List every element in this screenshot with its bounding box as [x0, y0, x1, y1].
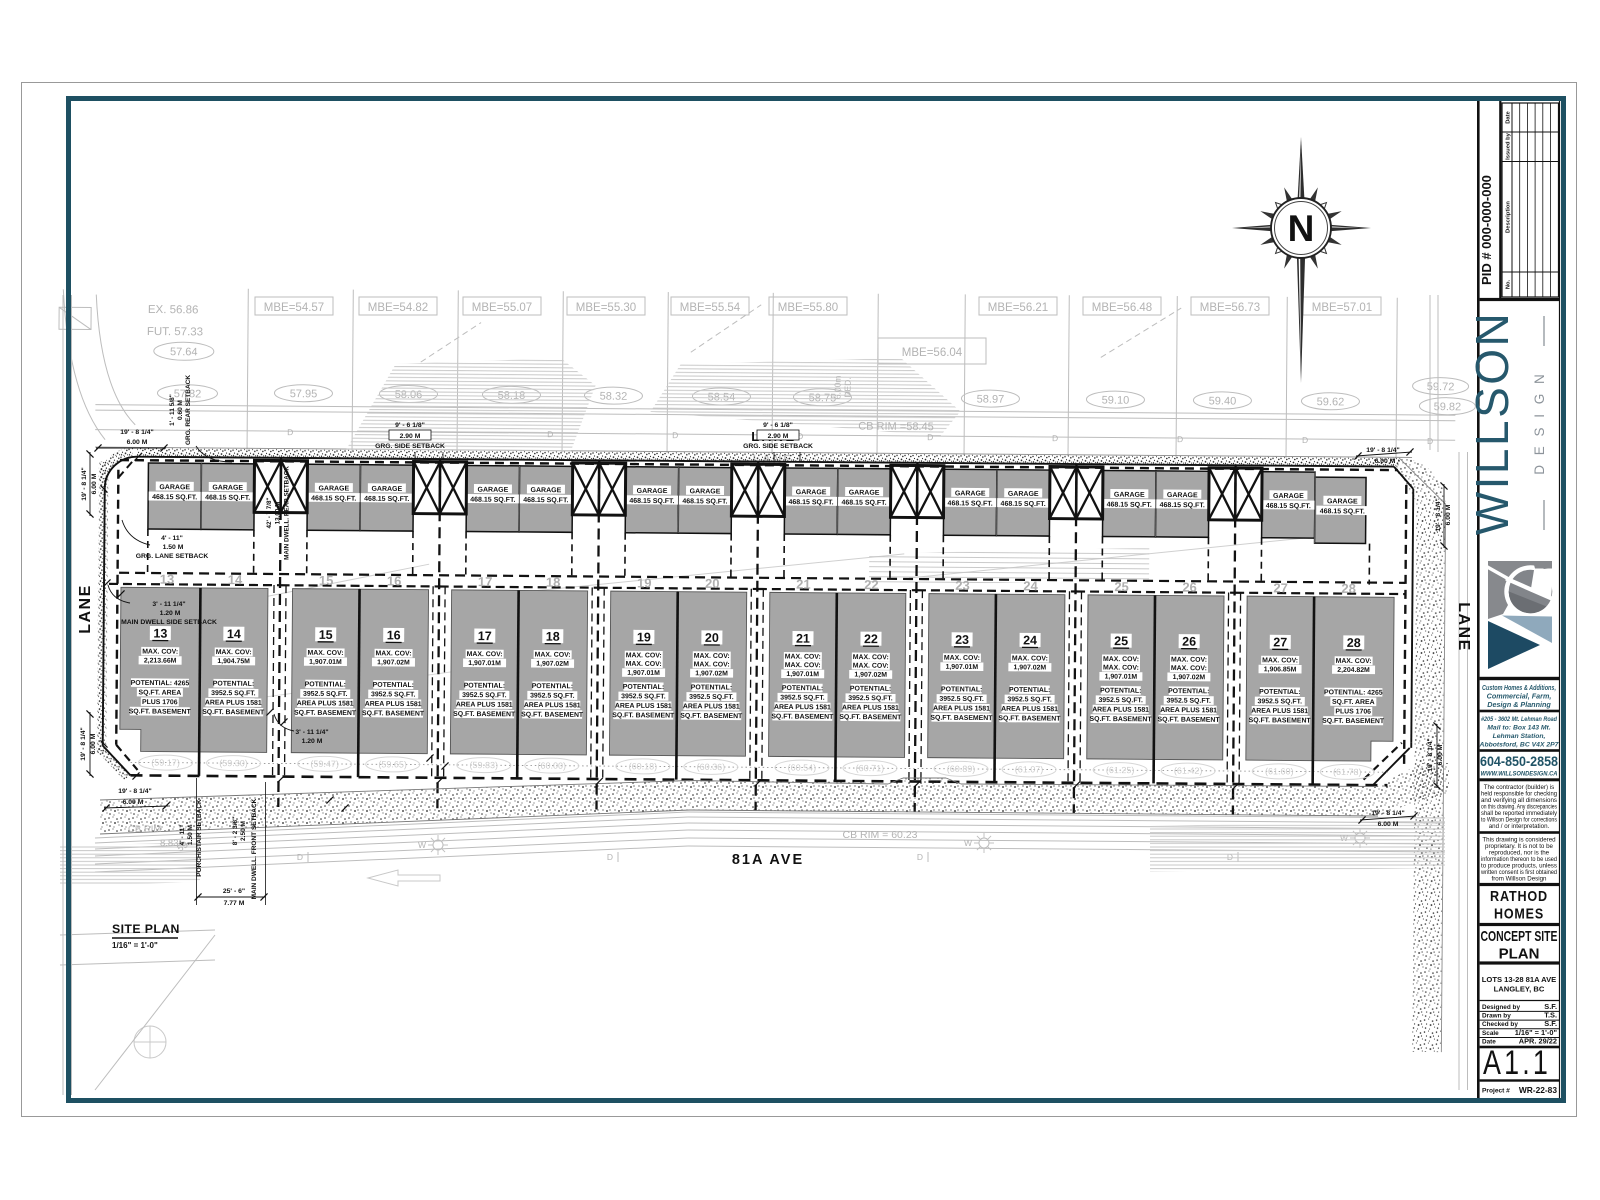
- svg-text:GARAGE: GARAGE: [212, 484, 243, 491]
- svg-text:D: D: [1302, 435, 1308, 445]
- svg-text:1,907.01M: 1,907.01M: [309, 659, 342, 666]
- svg-text:Scale: Scale: [1482, 1030, 1499, 1037]
- svg-text:SQ.FT. BASEMENT: SQ.FT. BASEMENT: [1158, 716, 1221, 723]
- svg-text:HOMES: HOMES: [1494, 906, 1544, 923]
- svg-text:3952.5 SQ.FT.: 3952.5 SQ.FT.: [1098, 697, 1143, 704]
- svg-text:59.10: 59.10: [1102, 394, 1130, 406]
- svg-text:4' - 11": 4' - 11": [161, 535, 183, 542]
- svg-text:Abbotsford, BC V4X 2P7: Abbotsford, BC V4X 2P7: [1479, 742, 1560, 749]
- svg-text:D: D: [672, 430, 678, 440]
- svg-text:SQ.FT. BASEMENT: SQ.FT. BASEMENT: [1090, 716, 1153, 723]
- svg-text:58.97: 58.97: [977, 393, 1005, 405]
- svg-text:(61.07): (61.07): [1015, 764, 1044, 774]
- svg-text:D: D: [1052, 433, 1058, 443]
- svg-text:24: 24: [1023, 633, 1037, 647]
- svg-text:MBE=54.82: MBE=54.82: [368, 302, 428, 314]
- svg-text:GARAGE: GARAGE: [796, 489, 827, 496]
- svg-text:(59.47): (59.47): [310, 759, 339, 769]
- svg-text:CONCEPT SITE: CONCEPT SITE: [1481, 928, 1558, 945]
- svg-text:AREA PLUS 1581: AREA PLUS 1581: [1001, 706, 1058, 713]
- svg-text:24: 24: [1023, 578, 1038, 593]
- svg-text:MAX. COV:: MAX. COV:: [376, 650, 412, 657]
- svg-text:19' - 8 1/4": 19' - 8 1/4": [1427, 738, 1434, 772]
- svg-text:AREA PLUS 1581: AREA PLUS 1581: [1251, 708, 1308, 715]
- svg-text:468.15 SQ.FT.: 468.15 SQ.FT.: [364, 496, 409, 503]
- svg-text:20: 20: [705, 576, 720, 591]
- svg-text:LOTS 13-28 81A AVE: LOTS 13-28 81A AVE: [1482, 975, 1556, 984]
- svg-text:WILLSON: WILLSON: [1466, 311, 1518, 536]
- svg-text:59.40: 59.40: [1209, 395, 1237, 407]
- svg-text:20: 20: [705, 631, 719, 645]
- svg-text:1/16" = 1'-0": 1/16" = 1'-0": [112, 941, 158, 950]
- svg-text:1' - 11 5/8": 1' - 11 5/8": [169, 394, 176, 426]
- svg-text:59.72: 59.72: [1427, 381, 1455, 393]
- svg-text:POTENTIAL:: POTENTIAL:: [532, 683, 573, 690]
- svg-text:POTENTIAL:: POTENTIAL:: [1100, 687, 1141, 694]
- svg-text:MAX. COV:: MAX. COV:: [1171, 657, 1207, 664]
- svg-text:18: 18: [546, 575, 561, 590]
- svg-text:SQ.FT. BASEMENT: SQ.FT. BASEMENT: [839, 714, 902, 721]
- svg-text:GARAGE: GARAGE: [637, 488, 668, 495]
- svg-text:SQ.FT. BASEMENT: SQ.FT. BASEMENT: [771, 713, 834, 720]
- svg-text:Description: Description: [1506, 201, 1512, 233]
- svg-text:POTENTIAL:: POTENTIAL:: [373, 682, 414, 689]
- svg-text:SQ.FT. BASEMENT: SQ.FT. BASEMENT: [612, 712, 675, 719]
- svg-text:468.15 SQ.FT.: 468.15 SQ.FT.: [948, 500, 993, 507]
- svg-text:21: 21: [796, 632, 810, 646]
- svg-text:81A AVE: 81A AVE: [732, 852, 804, 868]
- svg-text:POTENTIAL:: POTENTIAL:: [782, 685, 823, 692]
- svg-text:3' - 11 1/4": 3' - 11 1/4": [295, 729, 328, 736]
- svg-text:15: 15: [319, 573, 334, 588]
- svg-text:D: D: [917, 852, 923, 862]
- svg-text:3952.5 SQ.FT.: 3952.5 SQ.FT.: [1007, 696, 1052, 703]
- svg-text:Drawn by: Drawn by: [1482, 1013, 1511, 1020]
- svg-text:PLAN: PLAN: [1499, 946, 1540, 963]
- svg-text:AREA PLUS 1581: AREA PLUS 1581: [1160, 707, 1217, 714]
- svg-text:468.15 SQ.FT.: 468.15 SQ.FT.: [629, 498, 674, 505]
- svg-text:SQ.FT. BASEMENT: SQ.FT. BASEMENT: [930, 715, 993, 722]
- svg-text:3952.5 SQ.FT.: 3952.5 SQ.FT.: [1166, 697, 1211, 704]
- svg-text:from Willson Design: from Willson Design: [1491, 876, 1547, 883]
- svg-text:(59.65): (59.65): [378, 759, 407, 769]
- svg-text:PLUS 1706: PLUS 1706: [1335, 708, 1371, 715]
- svg-text:(60.71): (60.71): [856, 763, 885, 773]
- svg-text:MAX. COV:: MAX. COV:: [142, 648, 178, 655]
- svg-text:POTENTIAL:: POTENTIAL:: [1009, 687, 1050, 694]
- svg-text:468.15 SQ.FT.: 468.15 SQ.FT.: [788, 499, 833, 506]
- svg-text:PID # 000-000-000: PID # 000-000-000: [1479, 175, 1494, 285]
- svg-text:6.00 M: 6.00 M: [90, 733, 97, 754]
- svg-text:MAX. COV:: MAX. COV:: [1262, 657, 1298, 664]
- svg-text:AREA PLUS 1581: AREA PLUS 1581: [1092, 706, 1149, 713]
- svg-text:19' - 8 1/4": 19' - 8 1/4": [120, 429, 154, 436]
- svg-text:MAX. COV:: MAX. COV:: [1336, 658, 1372, 665]
- svg-text:MBE=56.73: MBE=56.73: [1200, 302, 1260, 314]
- svg-text:57.95: 57.95: [290, 388, 318, 400]
- svg-text:468.15 SQ.FT.: 468.15 SQ.FT.: [470, 497, 515, 504]
- svg-text:GARAGE: GARAGE: [1167, 492, 1198, 499]
- svg-text:(61.25): (61.25): [1106, 765, 1135, 775]
- svg-text:MAX. COV:: MAX. COV:: [853, 663, 889, 670]
- svg-text:1,904.75M: 1,904.75M: [217, 658, 250, 665]
- svg-text:1,907.01M: 1,907.01M: [1105, 674, 1138, 681]
- svg-text:No.: No.: [1506, 279, 1512, 289]
- svg-text:19' - 8 1/4": 19' - 8 1/4": [1435, 498, 1442, 532]
- svg-text:PORCH/STAIR SETBACK: PORCH/STAIR SETBACK: [196, 799, 203, 877]
- svg-text:POTENTIAL:: POTENTIAL:: [1168, 688, 1209, 695]
- svg-text:MBE=55.07: MBE=55.07: [472, 302, 532, 314]
- svg-text:RATHOD: RATHOD: [1490, 888, 1548, 905]
- svg-text:9' - 6 1/8": 9' - 6 1/8": [395, 422, 425, 429]
- svg-text:1,907.01M: 1,907.01M: [946, 664, 979, 671]
- svg-text:MAIN DWELL SIDE SETBACK: MAIN DWELL SIDE SETBACK: [121, 619, 217, 626]
- svg-text:468.15 SQ.FT.: 468.15 SQ.FT.: [1001, 501, 1046, 508]
- svg-text:T.S.: T.S.: [1544, 1011, 1557, 1020]
- svg-text:MAX. COV:: MAX. COV:: [853, 654, 889, 661]
- svg-text:AREA PLUS 1581: AREA PLUS 1581: [297, 700, 354, 707]
- svg-text:2.50 M: 2.50 M: [240, 821, 247, 841]
- svg-text:(60.54): (60.54): [788, 763, 817, 773]
- svg-text:2,204.82M: 2,204.82M: [1337, 667, 1370, 674]
- svg-text:GRG. SIDE SETBACK: GRG. SIDE SETBACK: [375, 443, 445, 450]
- svg-text:19: 19: [637, 630, 651, 644]
- svg-text:26: 26: [1182, 635, 1196, 649]
- svg-text:GARAGE: GARAGE: [531, 487, 562, 494]
- svg-text:28: 28: [1347, 636, 1361, 650]
- svg-text:D: D: [287, 427, 293, 437]
- svg-text:and / or interpretation.: and / or interpretation.: [1489, 823, 1550, 830]
- svg-text:S.F.: S.F.: [1544, 1002, 1557, 1011]
- svg-text:WWW.WILLSONDESIGN.CA: WWW.WILLSONDESIGN.CA: [1481, 771, 1558, 778]
- svg-text:CB RIM: CB RIM: [128, 824, 161, 835]
- svg-text:MAX. COV:: MAX. COV:: [1012, 655, 1048, 662]
- svg-text:GARAGE: GARAGE: [1114, 492, 1145, 499]
- svg-text:POTENTIAL:: POTENTIAL:: [850, 686, 891, 693]
- svg-text:3952.5 SQ.FT.: 3952.5 SQ.FT.: [211, 690, 256, 697]
- svg-text:468.15 SQ.FT.: 468.15 SQ.FT.: [1107, 502, 1152, 509]
- svg-text:GARAGE: GARAGE: [1008, 491, 1039, 498]
- svg-text:1,907.02M: 1,907.02M: [1014, 664, 1047, 671]
- svg-text:SQ.FT. BASEMENT: SQ.FT. BASEMENT: [680, 713, 743, 720]
- svg-text:6.00 M: 6.00 M: [123, 799, 144, 806]
- svg-text:GARAGE: GARAGE: [1273, 493, 1304, 500]
- svg-text:57.64: 57.64: [170, 346, 198, 358]
- svg-text:POTENTIAL: 4265: POTENTIAL: 4265: [131, 680, 190, 687]
- svg-text:25: 25: [1114, 634, 1128, 648]
- svg-text:Checked by: Checked by: [1482, 1021, 1518, 1028]
- svg-text:1,907.01M: 1,907.01M: [786, 671, 819, 678]
- svg-text:58.32: 58.32: [600, 391, 628, 403]
- svg-text:AREA PLUS 1581: AREA PLUS 1581: [524, 702, 581, 709]
- svg-text:1,907.01M: 1,907.01M: [627, 670, 660, 677]
- svg-text:4' - 11": 4' - 11": [179, 825, 186, 846]
- svg-text:16: 16: [387, 628, 401, 642]
- svg-text:MAIN DWELL. REAR SETBACK: MAIN DWELL. REAR SETBACK: [284, 466, 291, 560]
- svg-text:1,907.02M: 1,907.02M: [854, 672, 887, 679]
- svg-text:19' - 8 1/4": 19' - 8 1/4": [80, 727, 87, 761]
- svg-text:Issued by: Issued by: [1506, 132, 1512, 160]
- svg-text:MAX. COV:: MAX. COV:: [1103, 664, 1139, 671]
- svg-text:D: D: [297, 852, 303, 862]
- svg-text:468.15 SQ.FT.: 468.15 SQ.FT.: [205, 494, 250, 501]
- svg-text:MBE=56.21: MBE=56.21: [988, 302, 1048, 314]
- svg-text:3952.5 SQ.FT.: 3952.5 SQ.FT.: [1258, 698, 1303, 705]
- svg-text:(60.89): (60.89): [947, 764, 976, 774]
- svg-text:23: 23: [955, 578, 970, 593]
- svg-text:AREA PLUS 1581: AREA PLUS 1581: [205, 699, 262, 706]
- svg-text:SQ.FT. BASEMENT: SQ.FT. BASEMENT: [453, 711, 516, 718]
- svg-text:Designed by: Designed by: [1482, 1004, 1520, 1011]
- svg-text:SQ.FT. BASEMENT: SQ.FT. BASEMENT: [294, 710, 357, 717]
- svg-text:D: D: [1177, 434, 1183, 444]
- svg-text:(61.42): (61.42): [1174, 766, 1203, 776]
- svg-text:14: 14: [227, 627, 241, 641]
- svg-text:3952.5 SQ.FT.: 3952.5 SQ.FT.: [689, 694, 734, 701]
- svg-text:(60.00): (60.00): [537, 761, 566, 771]
- svg-text:(59.17): (59.17): [151, 758, 180, 768]
- svg-text:MAX. COV:: MAX. COV:: [785, 653, 821, 660]
- svg-text:POTENTIAL:: POTENTIAL:: [941, 686, 982, 693]
- svg-text:GARAGE: GARAGE: [159, 484, 190, 491]
- svg-text:AREA PLUS 1581: AREA PLUS 1581: [774, 704, 831, 711]
- svg-text:SQ.FT. BASEMENT: SQ.FT. BASEMENT: [521, 711, 584, 718]
- svg-text:15: 15: [319, 628, 333, 642]
- svg-text:19' - 8 1/4": 19' - 8 1/4": [81, 467, 88, 501]
- svg-text:AREA PLUS 1581: AREA PLUS 1581: [683, 703, 740, 710]
- svg-text:SQ.FT. BASEMENT: SQ.FT. BASEMENT: [1322, 718, 1385, 725]
- svg-text:MBE=55.54: MBE=55.54: [680, 302, 741, 314]
- svg-text:D: D: [927, 432, 933, 442]
- svg-text:WR-22-83: WR-22-83: [1519, 1085, 1558, 1095]
- svg-text:A1.1: A1.1: [1483, 1044, 1551, 1082]
- svg-text:POTENTIAL: 4265: POTENTIAL: 4265: [1324, 689, 1383, 696]
- svg-text:MBE=56.48: MBE=56.48: [1092, 302, 1152, 314]
- svg-text:LANE: LANE: [77, 584, 94, 634]
- svg-text:468.15 SQ.FT.: 468.15 SQ.FT.: [311, 495, 356, 502]
- svg-text:SQ.FT. BASEMENT: SQ.FT. BASEMENT: [202, 709, 265, 716]
- svg-text:MBE=57.01: MBE=57.01: [1312, 302, 1372, 314]
- svg-text:GARAGE: GARAGE: [955, 490, 986, 497]
- svg-text:19' - 8 1/4": 19' - 8 1/4": [1371, 810, 1405, 817]
- svg-text:GRG. LANE SETBACK: GRG. LANE SETBACK: [136, 553, 209, 560]
- svg-text:(61.78): (61.78): [1333, 767, 1362, 777]
- svg-text:2,213.66M: 2,213.66M: [144, 657, 177, 664]
- svg-text:2.90 M: 2.90 M: [400, 433, 421, 440]
- svg-text:23: 23: [955, 633, 969, 647]
- svg-text:LANE: LANE: [1455, 602, 1472, 652]
- svg-text:25' - 6": 25' - 6": [223, 888, 245, 895]
- svg-text:LANGLEY, BC: LANGLEY, BC: [1494, 985, 1545, 994]
- svg-text:CB RIM =58.45: CB RIM =58.45: [858, 421, 934, 434]
- svg-text:3952.5 SQ.FT.: 3952.5 SQ.FT.: [371, 691, 416, 698]
- svg-text:MAX. COV:: MAX. COV:: [694, 653, 730, 660]
- svg-text:26: 26: [1182, 580, 1197, 595]
- svg-text:19: 19: [637, 575, 652, 590]
- svg-text:1,907.02M: 1,907.02M: [377, 659, 410, 666]
- svg-text:1,907.02M: 1,907.02M: [1173, 674, 1206, 681]
- svg-text:(60.18): (60.18): [629, 761, 658, 771]
- svg-text:W: W: [964, 838, 972, 848]
- svg-text:1.50 M: 1.50 M: [163, 544, 184, 551]
- svg-text:MAIN DWELL. FRONT SETBACK: MAIN DWELL. FRONT SETBACK: [251, 798, 258, 899]
- svg-text:AREA PLUS 1581: AREA PLUS 1581: [456, 701, 513, 708]
- svg-text:PLUS 1706: PLUS 1706: [142, 699, 178, 706]
- svg-text:6.00 M: 6.00 M: [1437, 744, 1444, 765]
- svg-text:28: 28: [1341, 581, 1356, 596]
- svg-text:MBE=54.57: MBE=54.57: [264, 302, 324, 314]
- svg-text:42' - 7 7/8": 42' - 7 7/8": [266, 497, 273, 528]
- svg-text:GARAGE: GARAGE: [1327, 498, 1358, 505]
- svg-text:N: N: [1288, 208, 1315, 249]
- svg-text:Lehman Station,: Lehman Station,: [1493, 733, 1546, 740]
- svg-text:468.15 SQ.FT.: 468.15 SQ.FT.: [1160, 502, 1205, 509]
- svg-text:EX. 56.86: EX. 56.86: [148, 304, 199, 316]
- svg-text:468.15 SQ.FT.: 468.15 SQ.FT.: [682, 498, 727, 505]
- svg-text:17: 17: [478, 574, 493, 589]
- svg-text:MAX. COV:: MAX. COV:: [308, 650, 344, 657]
- svg-text:POTENTIAL:: POTENTIAL:: [691, 684, 732, 691]
- svg-text:3952.5 SQ.FT.: 3952.5 SQ.FT.: [939, 696, 984, 703]
- svg-text:SQ.FT. AREA: SQ.FT. AREA: [1332, 699, 1375, 706]
- svg-text:3952.5 SQ.FT.: 3952.5 SQ.FT.: [848, 695, 893, 702]
- svg-text:W: W: [418, 840, 426, 850]
- svg-text:1/16" = 1'-0": 1/16" = 1'-0": [1515, 1028, 1558, 1037]
- svg-text:22: 22: [864, 577, 879, 592]
- svg-text:FUT. 57.33: FUT. 57.33: [147, 326, 203, 338]
- svg-text:13: 13: [160, 572, 175, 587]
- svg-text:MAX. COV:: MAX. COV:: [694, 661, 730, 668]
- svg-text:POTENTIAL:: POTENTIAL:: [623, 684, 664, 691]
- svg-text:3952.5 SQ.FT.: 3952.5 SQ.FT.: [780, 694, 825, 701]
- svg-text:468.15 SQ.FT.: 468.15 SQ.FT.: [841, 499, 886, 506]
- svg-text:16: 16: [387, 573, 402, 588]
- svg-text:AREA PLUS 1581: AREA PLUS 1581: [842, 704, 899, 711]
- svg-text:3' - 11 1/4": 3' - 11 1/4": [152, 601, 185, 608]
- svg-text:MAX. COV:: MAX. COV:: [1103, 656, 1139, 663]
- svg-text:MBE=55.80: MBE=55.80: [778, 302, 838, 314]
- svg-text:468.15 SQ.FT.: 468.15 SQ.FT.: [152, 494, 197, 501]
- svg-text:(59.83): (59.83): [469, 760, 498, 770]
- svg-text:2.90 M: 2.90 M: [768, 433, 789, 440]
- svg-text:S.F.: S.F.: [1544, 1019, 1557, 1028]
- svg-text:GARAGE: GARAGE: [318, 485, 349, 492]
- svg-text:3952.5 SQ.FT.: 3952.5 SQ.FT.: [621, 693, 666, 700]
- svg-text:(59.30): (59.30): [219, 758, 248, 768]
- svg-text:17: 17: [478, 629, 492, 643]
- svg-text:GARAGE: GARAGE: [690, 488, 721, 495]
- svg-text:604-850-2858: 604-850-2858: [1480, 754, 1558, 770]
- svg-text:468.15 SQ.FT.: 468.15 SQ.FT.: [1320, 508, 1365, 515]
- svg-text:13.00 M: 13.00 M: [275, 502, 282, 525]
- svg-text:27: 27: [1273, 580, 1288, 595]
- svg-text:9' - 6 1/8": 9' - 6 1/8": [763, 422, 793, 429]
- svg-text:SQ.FT. BASEMENT: SQ.FT. BASEMENT: [998, 715, 1061, 722]
- svg-text:1,907.02M: 1,907.02M: [536, 661, 569, 668]
- svg-text:468.15 SQ.FT.: 468.15 SQ.FT.: [523, 497, 568, 504]
- svg-text:Design & Planning: Design & Planning: [1487, 700, 1551, 709]
- svg-text:6.00 M: 6.00 M: [1375, 458, 1396, 465]
- svg-text:MAX. COV:: MAX. COV:: [944, 655, 980, 662]
- svg-text:SQ.FT. BASEMENT: SQ.FT. BASEMENT: [129, 708, 192, 715]
- svg-text:25: 25: [1114, 579, 1129, 594]
- svg-text:DED.: DED.: [842, 377, 852, 397]
- svg-text:21: 21: [796, 577, 811, 592]
- svg-text:MBE=56.04: MBE=56.04: [902, 347, 963, 359]
- svg-text:59.62: 59.62: [1317, 396, 1345, 408]
- svg-text:0.60 M: 0.60 M: [177, 400, 184, 420]
- svg-text:AREA PLUS 1581: AREA PLUS 1581: [933, 705, 990, 712]
- svg-text:(61.60): (61.60): [1265, 766, 1294, 776]
- svg-text:GRG. REAR SETBACK: GRG. REAR SETBACK: [185, 375, 192, 445]
- svg-text:MBE=55.30: MBE=55.30: [576, 302, 636, 314]
- svg-text:Mail to: Box 143 Mt.: Mail to: Box 143 Mt.: [1487, 725, 1551, 732]
- svg-text:27: 27: [1273, 635, 1287, 649]
- svg-text:POTENTIAL:: POTENTIAL:: [464, 682, 505, 689]
- svg-text:6.00 M: 6.00 M: [91, 473, 98, 494]
- svg-text:Date: Date: [1506, 110, 1512, 123]
- svg-text:SITE PLAN: SITE PLAN: [112, 922, 180, 936]
- svg-text:D: D: [547, 429, 553, 439]
- svg-text:468.15 SQ.FT.: 468.15 SQ.FT.: [1266, 503, 1311, 510]
- svg-text:22: 22: [864, 632, 878, 646]
- svg-text:3952.5 SQ.FT.: 3952.5 SQ.FT.: [462, 692, 507, 699]
- svg-text:SQ.FT. BASEMENT: SQ.FT. BASEMENT: [1249, 717, 1312, 724]
- svg-text:(60.36): (60.36): [697, 762, 726, 772]
- svg-text:GARAGE: GARAGE: [371, 486, 402, 493]
- svg-text:POTENTIAL:: POTENTIAL:: [1259, 689, 1300, 696]
- svg-text:MAX. COV:: MAX. COV:: [535, 652, 571, 659]
- svg-text:GARAGE: GARAGE: [849, 489, 880, 496]
- svg-text:3952.5 SQ.FT.: 3952.5 SQ.FT.: [530, 692, 575, 699]
- svg-text:MAX. COV:: MAX. COV:: [216, 649, 252, 656]
- svg-text:MAX. COV:: MAX. COV:: [467, 651, 503, 658]
- svg-text:AREA PLUS 1581: AREA PLUS 1581: [365, 701, 422, 708]
- svg-text:6.00 M: 6.00 M: [1445, 504, 1452, 525]
- svg-text:SQ.FT. BASEMENT: SQ.FT. BASEMENT: [362, 710, 425, 717]
- svg-text:18: 18: [546, 630, 560, 644]
- svg-text:7.77 M: 7.77 M: [224, 900, 245, 907]
- svg-text:POTENTIAL:: POTENTIAL:: [213, 681, 254, 688]
- svg-text:8' - 2 3/8": 8' - 2 3/8": [232, 817, 239, 845]
- svg-text:GRG. SIDE SETBACK: GRG. SIDE SETBACK: [743, 443, 813, 450]
- svg-text:AREA PLUS 1581: AREA PLUS 1581: [615, 703, 672, 710]
- svg-text:MAX. COV:: MAX. COV:: [1171, 665, 1207, 672]
- svg-text:GARAGE: GARAGE: [478, 487, 509, 494]
- svg-text:D: D: [607, 852, 613, 862]
- svg-text:1,907.02M: 1,907.02M: [695, 670, 728, 677]
- svg-text:19' - 8 1/4": 19' - 8 1/4": [118, 788, 152, 795]
- svg-text:1.20 M: 1.20 M: [302, 738, 323, 745]
- svg-text:#205 - 3602 Mt. Lehman Road: #205 - 3602 Mt. Lehman Road: [1481, 716, 1558, 723]
- svg-text:MAX. COV:: MAX. COV:: [785, 662, 821, 669]
- svg-text:POTENTIAL:: POTENTIAL:: [305, 681, 346, 688]
- svg-text:MAX. COV:: MAX. COV:: [626, 661, 662, 668]
- svg-text:MAX. COV:: MAX. COV:: [626, 652, 662, 659]
- svg-text:6.00 M: 6.00 M: [127, 439, 148, 446]
- svg-text:1,906.85M: 1,906.85M: [1264, 666, 1297, 673]
- svg-text:SQ.FT. AREA: SQ.FT. AREA: [139, 689, 182, 696]
- svg-text:14: 14: [228, 572, 243, 587]
- svg-text:6.00m: 6.00m: [832, 376, 842, 400]
- svg-text:13: 13: [153, 627, 167, 641]
- svg-text:6.00 M: 6.00 M: [1378, 821, 1399, 828]
- svg-text:CB RIM = 60.23: CB RIM = 60.23: [843, 829, 918, 841]
- svg-text:1,907.01M: 1,907.01M: [468, 660, 501, 667]
- svg-text:1.20 M: 1.20 M: [160, 610, 181, 617]
- svg-text:1.50 M: 1.50 M: [187, 825, 194, 845]
- svg-text:D E S I G N: D E S I G N: [1532, 371, 1547, 475]
